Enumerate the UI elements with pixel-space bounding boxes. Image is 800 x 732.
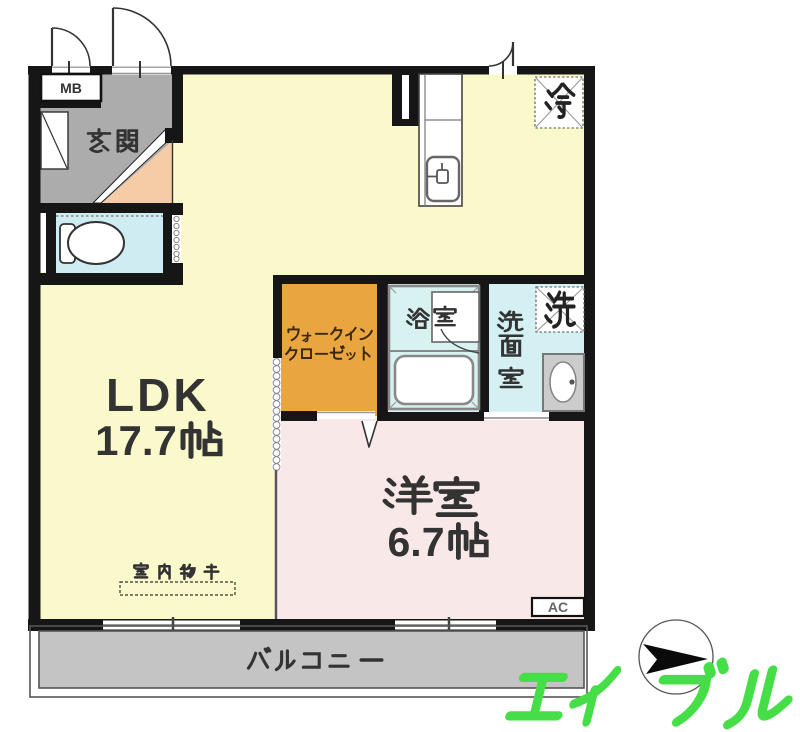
svg-text:6.7: 6.7: [388, 519, 445, 565]
svg-text:17.7: 17.7: [95, 417, 177, 464]
svg-text:AC: AC: [548, 599, 568, 615]
svg-text:LDK: LDK: [106, 369, 210, 421]
svg-text:MB: MB: [60, 80, 82, 96]
